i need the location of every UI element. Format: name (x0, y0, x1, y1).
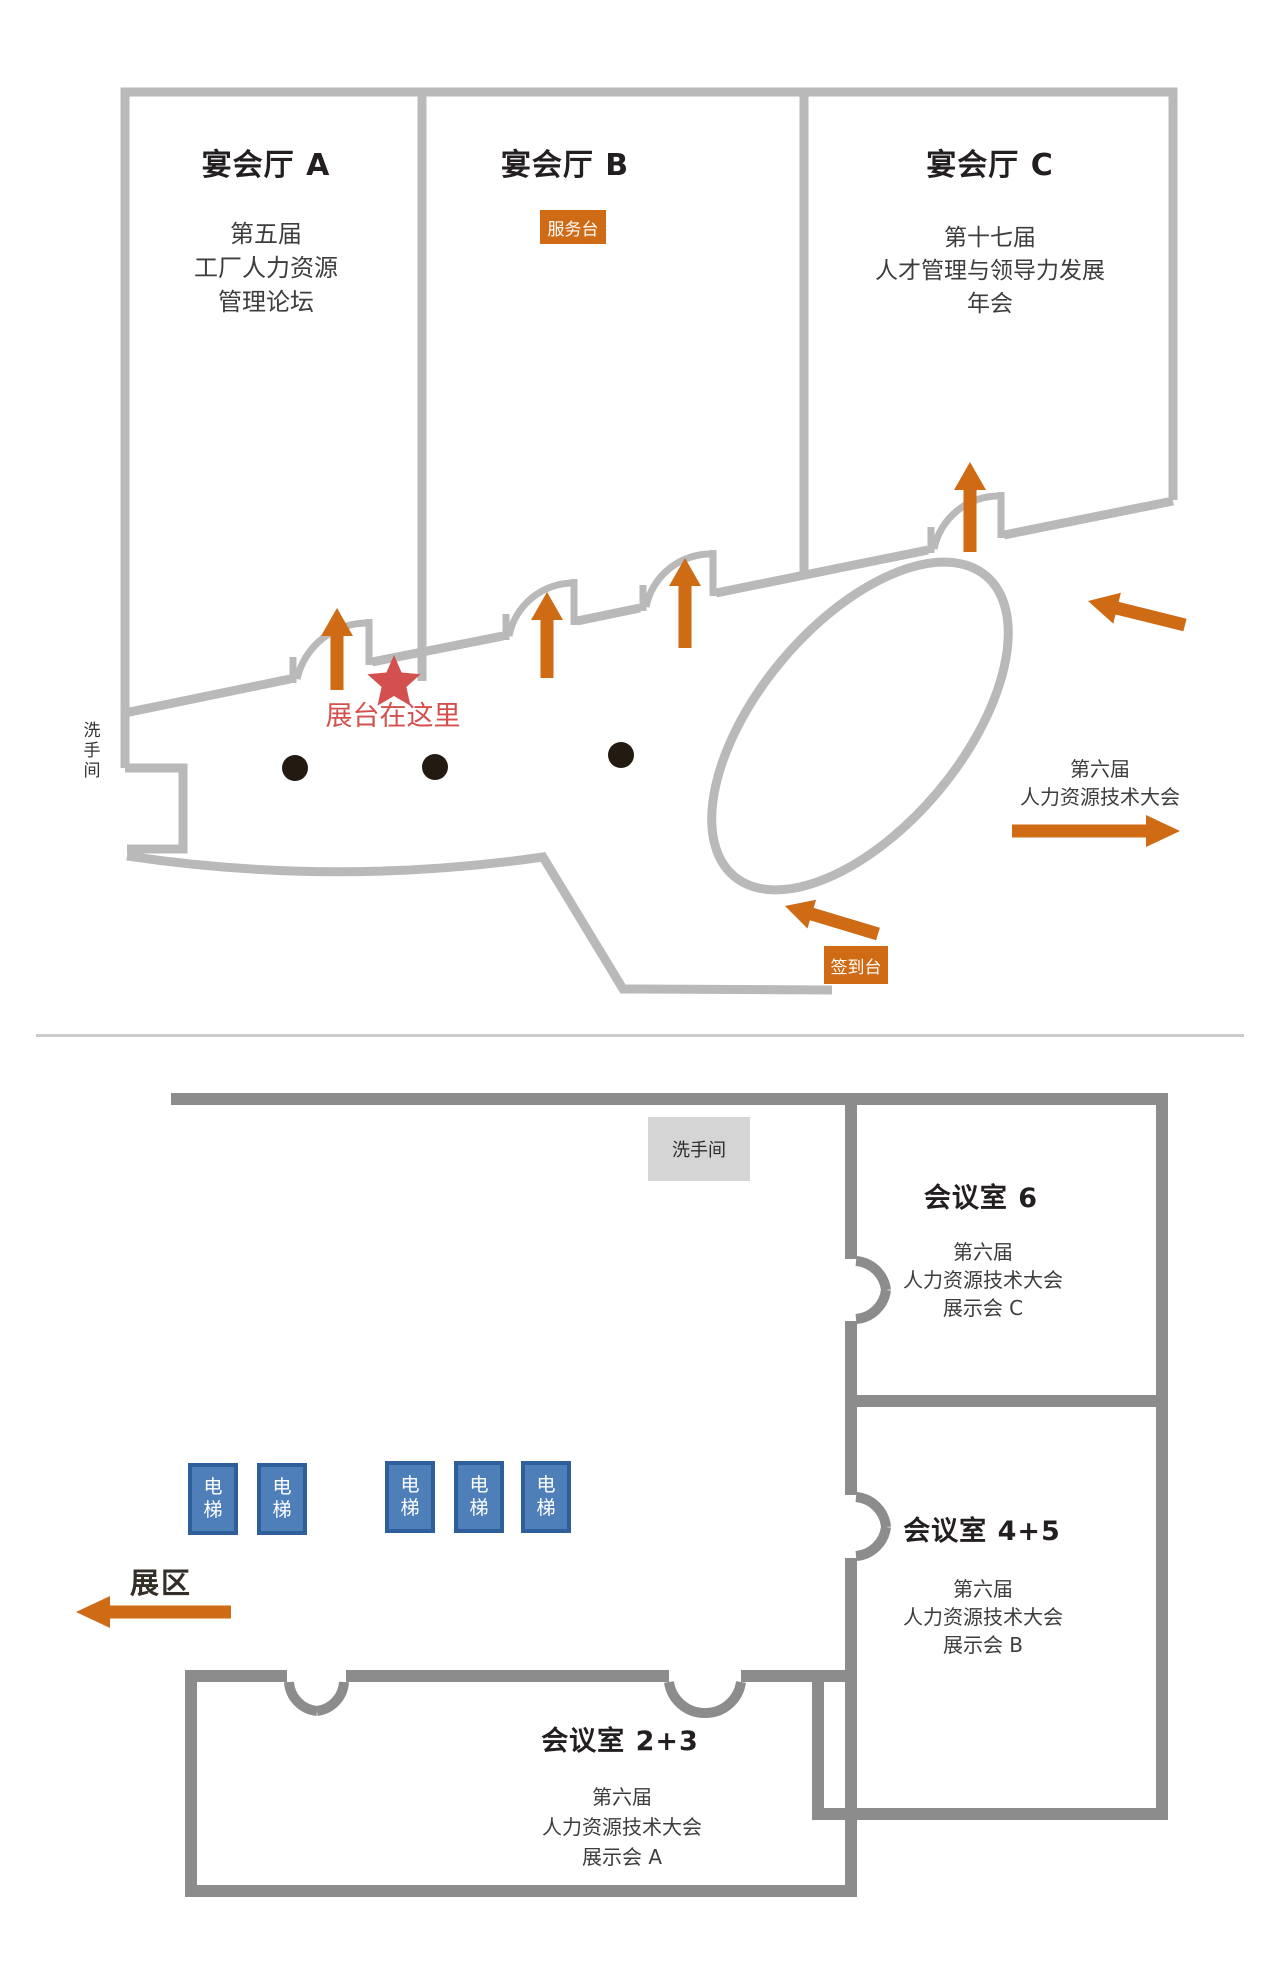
hall-c-event: 第十七届 人才管理与领导力发展 年会 (820, 222, 1160, 321)
lower-restroom-badge: 洗手间 (648, 1117, 750, 1181)
room45-event-line: 第六届 (833, 1575, 1133, 1603)
upper-lobby-boundary (127, 856, 832, 990)
checkin-desk-badge: 签到台 (824, 946, 888, 984)
upper-outer-walls (125, 92, 1173, 768)
column-dot (608, 742, 634, 768)
entrance-arrow-hall-b-right (669, 558, 701, 648)
room23-event-line: 人力资源技术大会 (472, 1812, 772, 1842)
booth-here-label: 展台在这里 (307, 694, 479, 733)
room6-title: 会议室 6 (856, 1176, 1106, 1215)
elevator-box: 电梯 (257, 1463, 307, 1535)
elevator-box: 电梯 (521, 1461, 571, 1533)
hall-a-title: 宴会厅 A (146, 140, 386, 184)
room23-event-line: 展示会 A (472, 1842, 772, 1872)
door-left-room (289, 1682, 344, 1711)
door-room23 (669, 1682, 741, 1713)
column-dots (282, 742, 634, 781)
inflow-arrow-upper-right (1088, 593, 1187, 632)
elevator-label: 电梯 (202, 1476, 224, 1522)
hall-c-event-line: 年会 (820, 288, 1160, 321)
hall-c-title: 宴会厅 C (870, 140, 1110, 184)
elevator-label: 电梯 (399, 1474, 421, 1520)
elevator-label: 电梯 (535, 1474, 557, 1520)
exit-arrow-right (1012, 815, 1180, 847)
upper-restroom-label: 洗手间 (81, 721, 103, 781)
hall-a-event-line: 管理论坛 (126, 285, 406, 319)
floor-plan-page: 宴会厅 A 第五届 工厂人力资源 管理论坛 宴会厅 B 服务台 宴会厅 C 第十… (0, 0, 1280, 1984)
column-dot (422, 754, 448, 780)
elevator-label: 电梯 (468, 1474, 490, 1520)
room6-event-line: 人力资源技术大会 (833, 1266, 1133, 1294)
lower-doors (289, 1261, 886, 1713)
checkin-arrow (785, 900, 880, 941)
tech-conference-line: 第六届 (1000, 755, 1200, 783)
column-dot (282, 755, 308, 781)
elevator-box: 电梯 (188, 1463, 238, 1535)
room6-event-line: 展示会 C (833, 1294, 1133, 1322)
hall-c-event-line: 第十七届 (820, 222, 1160, 255)
elevator-label: 电梯 (271, 1476, 293, 1522)
room6-event: 第六届 人力资源技术大会 展示会 C (833, 1238, 1133, 1322)
elevator-box: 电梯 (454, 1461, 504, 1533)
hall-c-event-line: 人才管理与领导力发展 (820, 255, 1160, 288)
room6-event-line: 第六届 (833, 1238, 1133, 1266)
tech-conference-line: 人力资源技术大会 (1000, 783, 1200, 811)
room23-event: 第六届 人力资源技术大会 展示会 A (472, 1782, 772, 1872)
elevator-box: 电梯 (385, 1461, 435, 1533)
room45-event-line: 展示会 B (833, 1631, 1133, 1659)
upper-restroom-notch (125, 768, 183, 849)
room45-event-line: 人力资源技术大会 (833, 1603, 1133, 1631)
plans-divider (36, 1034, 1244, 1037)
hall-a-event-line: 工厂人力资源 (126, 251, 406, 285)
hall-b-title: 宴会厅 B (445, 140, 685, 184)
lobby-ellipse (656, 510, 1064, 941)
room45-title: 会议室 4+5 (857, 1509, 1107, 1548)
entrance-arrow-hall-a (321, 608, 353, 690)
hall-a-event: 第五届 工厂人力资源 管理论坛 (126, 217, 406, 319)
tech-conference-note: 第六届 人力资源技术大会 (1000, 755, 1200, 811)
room23-title: 会议室 2+3 (495, 1719, 745, 1758)
room23-event-line: 第六届 (472, 1782, 772, 1812)
service-desk-badge: 服务台 (540, 210, 606, 244)
room45-event: 第六届 人力资源技术大会 展示会 B (833, 1575, 1133, 1659)
exhibition-area-label: 展区 (105, 1560, 217, 1602)
hall-a-event-line: 第五届 (126, 217, 406, 251)
entrance-arrow-hall-b-left (531, 592, 563, 678)
